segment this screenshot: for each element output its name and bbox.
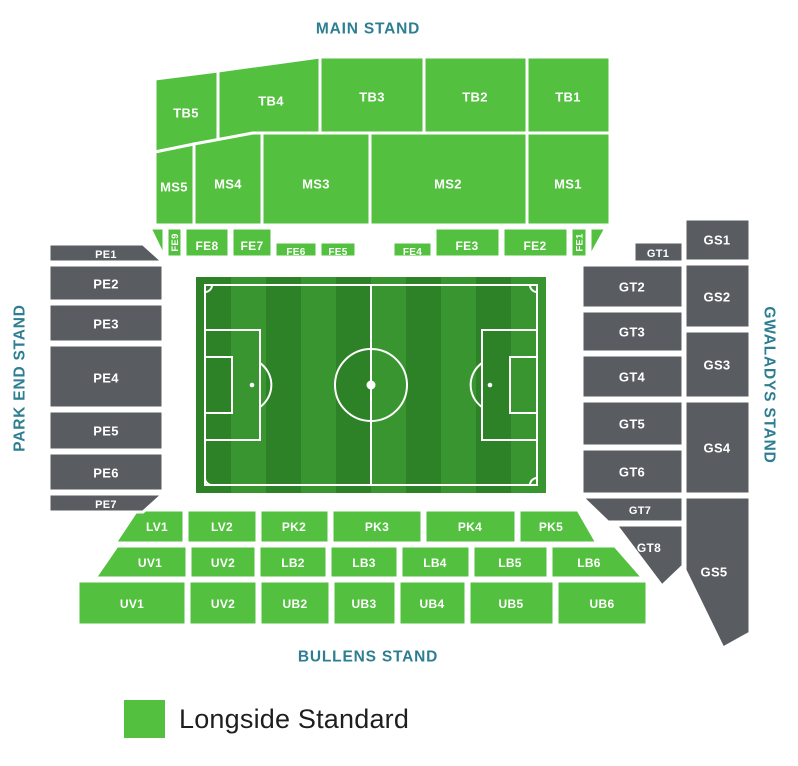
section-label-uv1-upper: UV1 bbox=[138, 556, 162, 570]
stand-title-main-stand: MAIN STAND bbox=[316, 20, 420, 37]
section-label-lb3: LB3 bbox=[352, 556, 376, 570]
section-label-uv2-lower: UV2 bbox=[211, 597, 235, 611]
section-label-pk4: PK4 bbox=[458, 520, 482, 534]
section-label-gt8: GT8 bbox=[637, 541, 661, 555]
section-label-fe8: FE8 bbox=[196, 239, 219, 253]
section-label-ms2: MS2 bbox=[434, 177, 462, 192]
section-label-pe2: PE2 bbox=[93, 277, 118, 292]
section-label-lb4: LB4 bbox=[423, 556, 447, 570]
section-label-gt7: GT7 bbox=[629, 505, 651, 517]
section-label-fe1: FE1 bbox=[574, 233, 585, 252]
section-label-pk3: PK3 bbox=[365, 520, 389, 534]
stadium-seat-map: TB5TB4TB3TB2TB1MS5MS4MS3MS2MS1FE9FE8FE7F… bbox=[0, 0, 798, 766]
section-label-lb2: LB2 bbox=[281, 556, 305, 570]
section-label-ub4: UB4 bbox=[420, 597, 445, 611]
section-label-fe3: FE3 bbox=[456, 239, 479, 253]
pitch-stripe bbox=[301, 277, 336, 493]
section-label-fe6: FE6 bbox=[286, 247, 305, 258]
section-label-tb2: TB2 bbox=[462, 90, 487, 105]
section-label-gs3: GS3 bbox=[704, 358, 731, 373]
legend-label: Longside Standard bbox=[179, 704, 409, 735]
section-label-gt5: GT5 bbox=[619, 417, 645, 432]
legend-swatch-longside-standard bbox=[124, 700, 165, 738]
section-label-gs2: GS2 bbox=[704, 290, 731, 305]
section-label-gt3: GT3 bbox=[619, 325, 645, 340]
section-label-tb1: TB1 bbox=[555, 90, 580, 105]
section-label-tb5: TB5 bbox=[173, 106, 198, 121]
section-label-lv1: LV1 bbox=[146, 520, 168, 534]
section-label-gs4: GS4 bbox=[704, 441, 731, 456]
pitch-stripe bbox=[371, 277, 406, 493]
section-label-gt2: GT2 bbox=[619, 280, 645, 295]
stand-title-gwaladys-stand: GWALADYS STAND bbox=[761, 306, 778, 463]
section-label-pe5: PE5 bbox=[93, 424, 118, 439]
section-label-ub6: UB6 bbox=[590, 597, 615, 611]
section-label-uv1-lower: UV1 bbox=[120, 597, 144, 611]
section-label-ub2: UB2 bbox=[283, 597, 308, 611]
section-label-fe4: FE4 bbox=[403, 247, 422, 258]
section-label-ms5: MS5 bbox=[160, 180, 188, 195]
section-label-ms4: MS4 bbox=[214, 177, 242, 192]
section-label-pe1: PE1 bbox=[95, 249, 117, 261]
section-label-ub3: UB3 bbox=[352, 597, 377, 611]
section-label-ms3: MS3 bbox=[302, 177, 330, 192]
section-label-fe5: FE5 bbox=[328, 247, 347, 258]
section-label-fe7: FE7 bbox=[241, 239, 264, 253]
section-label-ms1: MS1 bbox=[554, 177, 582, 192]
section-label-pe3: PE3 bbox=[93, 317, 118, 332]
section-label-lb5: LB5 bbox=[498, 556, 522, 570]
section-label-pk2: PK2 bbox=[282, 520, 306, 534]
section-label-gt1: GT1 bbox=[647, 248, 669, 260]
section-label-fe2: FE2 bbox=[524, 239, 547, 253]
section-fe-corner-right[interactable] bbox=[590, 228, 606, 257]
section-label-tb3: TB3 bbox=[359, 90, 384, 105]
section-label-pe7: PE7 bbox=[95, 499, 117, 511]
stand-title-bullens-stand: BULLENS STAND bbox=[298, 648, 438, 665]
football-pitch bbox=[196, 277, 546, 493]
section-label-ub5: UB5 bbox=[499, 597, 524, 611]
seat-map-svg: TB5TB4TB3TB2TB1MS5MS4MS3MS2MS1FE9FE8FE7F… bbox=[0, 0, 798, 766]
section-label-pk5: PK5 bbox=[539, 520, 563, 534]
section-label-gs1: GS1 bbox=[704, 233, 731, 248]
section-label-fe9: FE9 bbox=[170, 233, 181, 251]
section-label-gt6: GT6 bbox=[619, 465, 645, 480]
legend: Longside Standard bbox=[124, 700, 409, 738]
section-label-pe6: PE6 bbox=[93, 466, 118, 481]
section-label-lv2: LV2 bbox=[211, 520, 233, 534]
section-label-gt4: GT4 bbox=[619, 370, 646, 385]
section-label-lb6: LB6 bbox=[577, 556, 601, 570]
section-label-gs5: GS5 bbox=[701, 565, 728, 580]
section-label-uv2-upper: UV2 bbox=[211, 556, 235, 570]
section-label-pe4: PE4 bbox=[93, 371, 119, 386]
pitch-stripe bbox=[511, 277, 546, 493]
stand-title-park-end-stand: PARK END STAND bbox=[11, 304, 28, 452]
section-label-tb4: TB4 bbox=[258, 94, 284, 109]
